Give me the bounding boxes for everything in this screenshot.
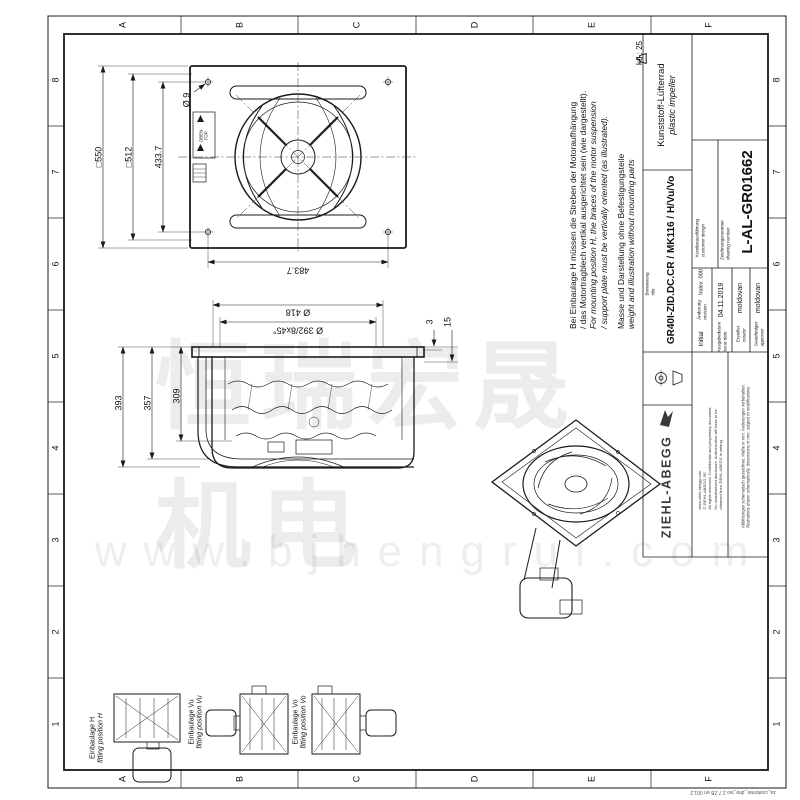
- ziehl-abegg-flag-icon: [660, 410, 673, 427]
- form-id-footer: za_customer_drw_iso 2.7 ZB en 001.2: [690, 789, 776, 795]
- benennung-label-en: title: [650, 289, 656, 296]
- border-row-4-right: 4: [772, 445, 783, 450]
- note-weight-en: weight and illustration without mounting…: [626, 159, 636, 329]
- border-col-d-bottom: D: [470, 776, 481, 783]
- support-bracket: [198, 357, 414, 467]
- revision-label: Änderung revision: [696, 300, 707, 320]
- iso-motor: [520, 528, 582, 618]
- dim-depth-total: 393: [114, 395, 125, 410]
- note-en-2: / support plate must be vertically orien…: [599, 116, 609, 329]
- drawing-sheet: { "sheet": { "border_columns": ["A","B",…: [0, 0, 800, 800]
- border-col-f-bottom: F: [704, 776, 715, 782]
- dim-plate-thickness: 3: [425, 319, 436, 324]
- creator-label-en: creator: [741, 328, 747, 342]
- border-col-e-top: E: [587, 22, 598, 28]
- index-value: 000: [699, 269, 705, 278]
- fitting-label-h: Einbaulage H fitting position H: [90, 713, 107, 763]
- border-row-2-right: 2: [772, 629, 783, 634]
- fitting-label-vu: Einbaulage Vu fitting position Vu: [189, 695, 206, 748]
- impeller-cone-profile: [228, 381, 392, 439]
- issue-date-label-en: issue date: [722, 332, 728, 353]
- border-row-1-left: 1: [51, 721, 62, 726]
- mounting-notes: Bei Einbaulage H müssen die Streben der …: [568, 91, 636, 329]
- dim-outer-square: □550: [94, 147, 105, 167]
- creator-value: moldovan: [737, 283, 745, 313]
- dim-bolt-circle: Ø 392/8x45°: [273, 325, 323, 336]
- isometric-view: [492, 420, 660, 618]
- drawing-number-label: Zeichnungsnummer drawing number: [719, 220, 730, 260]
- fitting-label-h-de: Einbaulage H: [90, 717, 98, 759]
- weight-icon: [635, 52, 647, 65]
- border-row-2-left: 2: [51, 629, 62, 634]
- side-view: [192, 347, 424, 468]
- border-row-1-right: 1: [772, 721, 783, 726]
- border-row-6-left: 6: [51, 261, 62, 266]
- index-label: Index: [699, 281, 705, 294]
- dim-hole-pitch-vertical: 433.7: [154, 146, 165, 169]
- issue-date-label: Ausgabedatum issue date: [716, 322, 727, 352]
- drawing-number: L-AL-GR01662: [739, 150, 757, 253]
- border-row-5-left: 5: [51, 353, 62, 358]
- border-row-4-left: 4: [51, 445, 62, 450]
- customer-label-en: customer design: [700, 224, 706, 257]
- fitting-label-vo-de: Einbaulage Vo: [293, 699, 301, 744]
- fitting-view-h: [114, 694, 180, 782]
- fitting-label-vo: Einbaulage Vo fitting position Vo: [293, 695, 310, 748]
- border-col-d-top: D: [470, 22, 481, 29]
- fitting-view-vu: [206, 686, 288, 754]
- border-col-b-top: B: [235, 22, 246, 28]
- iso-blades: [538, 452, 612, 514]
- legal-text: www.ziehl-abegg.com © ZIEHL-ABEGG SE All…: [697, 406, 723, 509]
- border-row-3-left: 3: [51, 537, 62, 542]
- drawing-number-label-en: drawing number: [725, 228, 731, 260]
- customer-design-label: Kundenausführung customer design: [694, 219, 705, 257]
- legal-line-5: obtained from ZIEHL-ABEGG in writing.: [718, 439, 723, 509]
- drawing-title: GR40I-ZID.DC.CR / MK116 / H/Vu/Vo: [666, 176, 678, 344]
- modification-note: Abbildungen schematisch gezeichnet. Maße…: [741, 384, 752, 528]
- border-col-c-top: C: [352, 22, 363, 29]
- border-row-3-right: 3: [772, 537, 783, 542]
- fitting-label-vu-en: fitting position Vu: [197, 695, 205, 748]
- fitting-label-h-en: fitting position H: [98, 713, 106, 763]
- border-row-7-right: 7: [772, 169, 783, 174]
- approver-label: Genehmiger approver: [753, 322, 764, 347]
- weight-note: kg : 25: [635, 41, 645, 65]
- fitting-label-vo-en: fitting position Vo: [301, 695, 309, 748]
- dim-inner-square: □512: [124, 147, 135, 167]
- revision-value: Initial: [698, 331, 706, 346]
- terminal-box-symbol: [193, 164, 206, 182]
- front-view: [178, 62, 418, 252]
- benennung-label: Benennung title: [644, 272, 655, 295]
- dim-hole-diameter: Ø 9: [182, 93, 193, 108]
- dim-hole-pitch-horizontal: 483.7: [287, 265, 310, 276]
- fitting-view-vo: [312, 686, 396, 754]
- border-col-e-bottom: E: [587, 776, 598, 782]
- dim-flange-depth: 15: [443, 317, 454, 327]
- index-field: Index 000: [699, 269, 706, 295]
- oben-top-label: OBEN TOP: [199, 130, 210, 143]
- side-view-dimensions: [118, 330, 458, 467]
- note-en-1: For mounting position H, the braces of t…: [588, 101, 598, 329]
- border-row-8-left: 8: [51, 77, 62, 82]
- note-weight-de: Masse und Darstellung ohne Befestigungst…: [616, 154, 626, 329]
- creator-label: Ersteller creator: [735, 326, 746, 343]
- approver-label-en: approver: [759, 329, 765, 347]
- centerlines: [178, 62, 418, 252]
- product-name-en: plastic impeller: [667, 75, 678, 135]
- border-row-5-right: 5: [772, 353, 783, 358]
- dim-inlet-diameter: Ø 418: [286, 307, 311, 318]
- modification-note-en: illustrations drawn schematically. dimen…: [746, 387, 751, 528]
- note-de-2: / das Motortragblech vertikal ausgericht…: [578, 91, 588, 329]
- product-name: Kunststoff-Lüfterrad plastic impeller: [656, 63, 678, 146]
- fitting-label-vu-de: Einbaulage Vu: [189, 699, 197, 744]
- border-col-a-top: A: [118, 22, 129, 28]
- border-row-7-left: 7: [51, 169, 62, 174]
- border-col-c-bottom: C: [352, 776, 363, 783]
- front-view-dimensions: [98, 66, 388, 268]
- projection-symbol: [656, 370, 683, 386]
- product-name-de: Kunststoff-Lüfterrad: [656, 63, 667, 146]
- dim-depth-to-bracket: 357: [143, 395, 154, 410]
- border-col-a-bottom: A: [118, 776, 129, 782]
- issue-date-value: 04.11.2019: [718, 283, 726, 318]
- border-row-6-right: 6: [772, 261, 783, 266]
- revision-label-en: revision: [702, 304, 708, 320]
- note-de-1: Bei Einbaulage H müssen die Streben der …: [568, 102, 578, 329]
- approver-value: moldovan: [755, 283, 763, 313]
- border-col-f-top: F: [704, 22, 715, 28]
- border-col-b-bottom: B: [235, 776, 246, 782]
- border-row-8-right: 8: [772, 77, 783, 82]
- dim-depth-to-cone: 309: [172, 388, 183, 403]
- ziehl-abegg-logo: ZIEHL-ABEGG: [660, 436, 675, 539]
- top-label: TOP: [204, 131, 209, 140]
